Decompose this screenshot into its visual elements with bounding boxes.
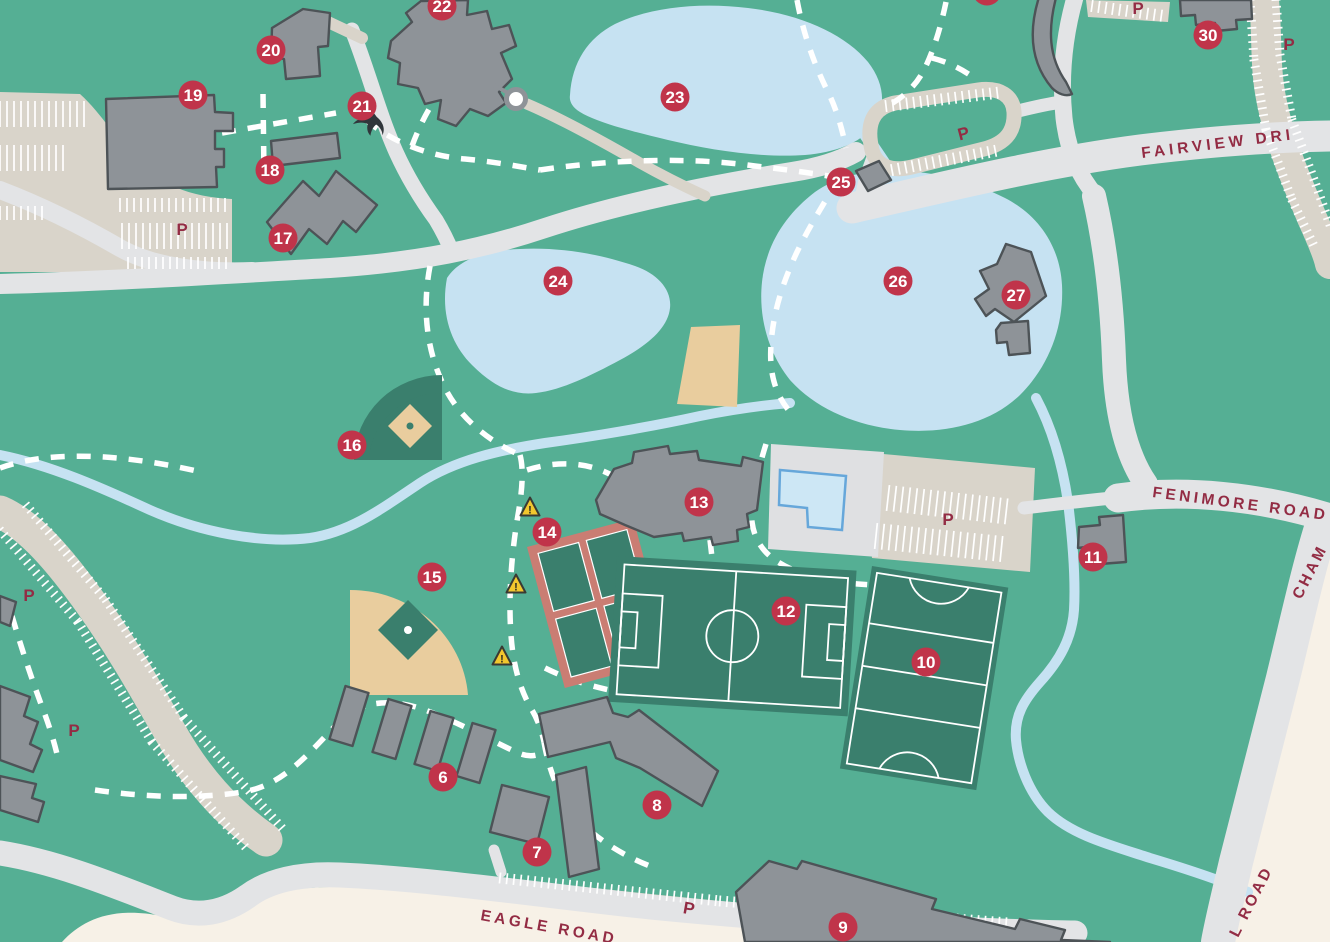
road-stub-building7 xyxy=(494,850,501,872)
map-marker-7[interactable]: 7 xyxy=(523,838,552,867)
parking-tick xyxy=(527,875,528,886)
map-marker-24[interactable]: 24 xyxy=(544,267,573,296)
parking-tick xyxy=(499,873,500,884)
svg-text:!: ! xyxy=(514,582,518,594)
svg-text:13: 13 xyxy=(690,493,709,512)
svg-text:!: ! xyxy=(528,505,532,517)
map-marker-14[interactable]: 14 xyxy=(533,518,562,547)
map-marker-21[interactable]: 21 xyxy=(348,92,377,121)
parking-tick xyxy=(506,873,507,884)
map-marker-27[interactable]: 27 xyxy=(1002,281,1031,310)
parking-label: P xyxy=(1283,35,1294,54)
parking-tick xyxy=(1275,42,1284,43)
parking-tick xyxy=(1274,35,1283,36)
map-marker-13[interactable]: 13 xyxy=(685,488,714,517)
map-marker-19[interactable]: 19 xyxy=(179,81,208,110)
parking-tick xyxy=(604,883,605,894)
svg-text:19: 19 xyxy=(184,86,203,105)
svg-text:9: 9 xyxy=(838,918,847,937)
parking-tick xyxy=(727,896,728,907)
parking-tick xyxy=(541,877,542,888)
parking-tick xyxy=(548,878,549,889)
campus-map: !!! FAIRVIEW DRIFENIMORE ROADEAGLE ROADC… xyxy=(0,0,1330,942)
svg-text:20: 20 xyxy=(262,41,281,60)
map-marker-17[interactable]: 17 xyxy=(269,224,298,253)
parking-tick xyxy=(680,891,681,902)
parking-tick xyxy=(555,878,556,889)
parking-label: P xyxy=(23,586,34,605)
parking-label: P xyxy=(68,721,79,740)
parking-label: P xyxy=(1132,0,1143,18)
svg-text:21: 21 xyxy=(353,97,372,116)
svg-text:24: 24 xyxy=(549,272,568,291)
parking-label: P xyxy=(942,510,953,529)
building-19 xyxy=(106,95,233,189)
parking-tick xyxy=(520,875,521,886)
svg-text:26: 26 xyxy=(889,272,908,291)
campus-map-svg: !!! FAIRVIEW DRIFENIMORE ROADEAGLE ROADC… xyxy=(0,0,1330,942)
map-marker-26[interactable]: 26 xyxy=(884,267,913,296)
parking-label: P xyxy=(176,220,187,239)
parking-tick xyxy=(660,889,661,900)
map-marker-16[interactable]: 16 xyxy=(338,431,367,460)
parking-tick xyxy=(715,895,716,906)
parking-tick xyxy=(720,896,721,907)
map-marker-11[interactable]: 11 xyxy=(1079,543,1108,572)
svg-text:17: 17 xyxy=(274,229,293,248)
map-marker-10[interactable]: 10 xyxy=(912,648,941,677)
parking-tick xyxy=(534,876,535,887)
parking-tick xyxy=(562,879,563,890)
parking-tick xyxy=(618,885,619,896)
parking-tick xyxy=(611,884,612,895)
parking-tick xyxy=(590,882,591,893)
parking-tick xyxy=(1274,28,1283,29)
map-marker-18[interactable]: 18 xyxy=(256,156,285,185)
parking-tick xyxy=(576,881,577,892)
svg-text:16: 16 xyxy=(343,436,362,455)
parking-tick xyxy=(569,880,570,891)
parking-tick xyxy=(1247,28,1256,29)
parking-tick xyxy=(653,889,654,900)
svg-text:12: 12 xyxy=(777,602,796,621)
parking-tick xyxy=(639,887,640,898)
parking-tick xyxy=(1273,14,1282,15)
parking-tick xyxy=(1248,35,1257,36)
svg-text:18: 18 xyxy=(261,161,280,180)
building-7-a xyxy=(490,785,549,844)
svg-text:7: 7 xyxy=(532,843,541,862)
svg-text:27: 27 xyxy=(1007,286,1026,305)
parking-tick xyxy=(632,886,633,897)
map-marker-9[interactable]: 9 xyxy=(829,913,858,942)
parking-tick xyxy=(734,897,735,908)
parking-tick xyxy=(597,883,598,894)
map-marker-23[interactable]: 23 xyxy=(661,83,690,112)
map-marker-6[interactable]: 6 xyxy=(429,763,458,792)
svg-text:22: 22 xyxy=(433,0,452,16)
parking-tick xyxy=(673,891,674,902)
parking-tick xyxy=(1248,42,1257,43)
parking-tick xyxy=(646,888,647,899)
parking-tick xyxy=(708,894,709,905)
svg-text:14: 14 xyxy=(538,523,557,542)
map-marker-12[interactable]: 12 xyxy=(772,597,801,626)
svg-text:6: 6 xyxy=(438,768,447,787)
parking-tick xyxy=(1272,7,1281,8)
svg-text:25: 25 xyxy=(832,173,851,192)
parking-tick xyxy=(701,894,702,905)
svg-text:11: 11 xyxy=(1084,548,1102,567)
map-marker-25[interactable]: 25 xyxy=(827,168,856,197)
svg-text:!: ! xyxy=(500,654,504,666)
svg-text:30: 30 xyxy=(1199,26,1218,45)
parking-tick xyxy=(513,874,514,885)
svg-text:8: 8 xyxy=(652,796,661,815)
parking-tick xyxy=(583,881,584,892)
parking-tick xyxy=(1249,49,1258,50)
soccer-field xyxy=(608,556,856,716)
parking-tick xyxy=(1273,21,1282,22)
map-marker-15[interactable]: 15 xyxy=(418,563,447,592)
map-marker-8[interactable]: 8 xyxy=(643,791,672,820)
map-marker-30[interactable]: 30 xyxy=(1194,21,1223,50)
parking-tick xyxy=(667,890,668,901)
parking-tick xyxy=(625,886,626,897)
svg-text:10: 10 xyxy=(917,653,936,672)
parking-tick xyxy=(1247,21,1256,22)
parking-tick xyxy=(1249,56,1258,57)
map-marker-20[interactable]: 20 xyxy=(257,36,286,65)
svg-text:15: 15 xyxy=(423,568,442,587)
svg-text:23: 23 xyxy=(666,88,685,107)
